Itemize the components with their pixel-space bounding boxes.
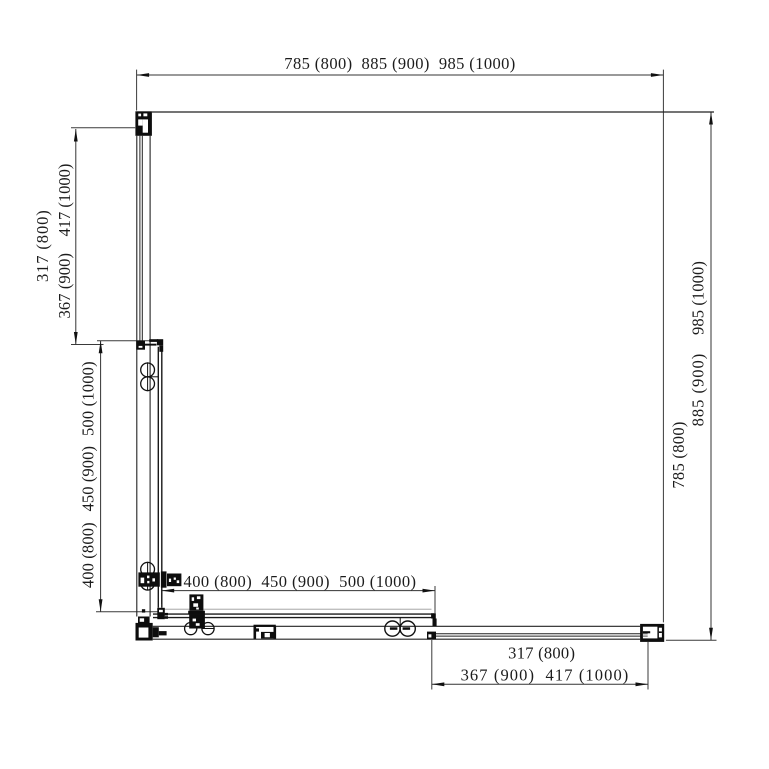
svg-text:785 (800): 785 (800)	[669, 421, 688, 488]
svg-text:417 (1000): 417 (1000)	[55, 164, 74, 237]
svg-text:450 (900): 450 (900)	[79, 446, 98, 512]
svg-text:367 (900) 417 (1000): 367 (900) 417 (1000)	[461, 666, 630, 685]
svg-text:785 (800) 885 (900) 985 (100: 785 (800) 885 (900) 985 (1000)	[284, 54, 515, 73]
svg-text:317 (800): 317 (800)	[33, 209, 52, 282]
svg-text:885 (900): 885 (900)	[689, 353, 708, 427]
svg-text:400 (800) 450 (900) 500 (100: 400 (800) 450 (900) 500 (1000)	[184, 572, 417, 591]
svg-text:317 (800): 317 (800)	[508, 644, 575, 663]
svg-text:367 (900): 367 (900)	[55, 253, 74, 319]
svg-text:985 (1000): 985 (1000)	[689, 261, 708, 335]
svg-text:400 (800): 400 (800)	[79, 522, 98, 588]
svg-text:500 (1000): 500 (1000)	[79, 361, 98, 436]
